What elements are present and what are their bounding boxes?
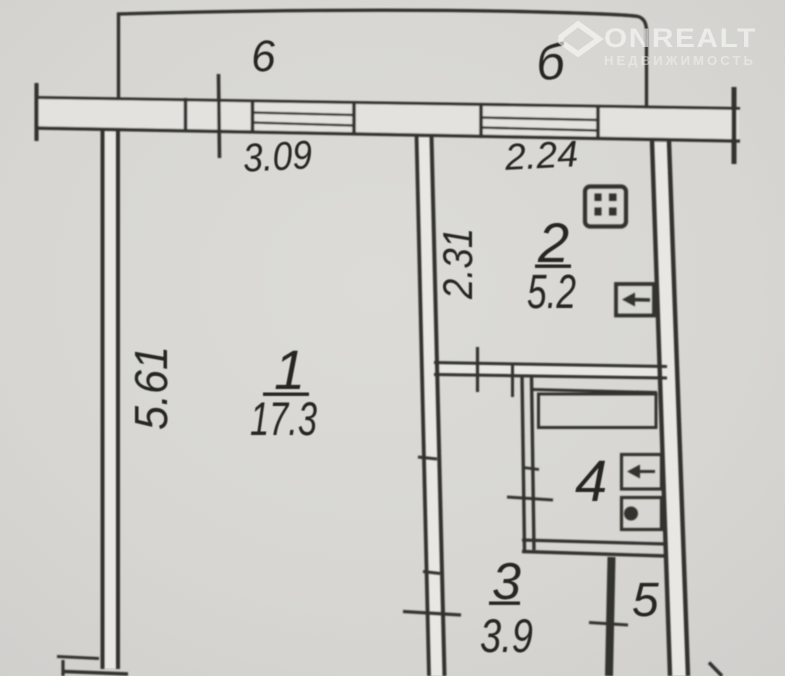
svg-text:2.31: 2.31 bbox=[434, 228, 481, 300]
svg-text:2.24: 2.24 bbox=[503, 133, 579, 178]
svg-text:17.3: 17.3 bbox=[250, 392, 317, 445]
svg-text:5: 5 bbox=[632, 574, 659, 627]
svg-text:НЕДВИЖИМОСТЬ: НЕДВИЖИМОСТЬ bbox=[604, 53, 756, 68]
svg-text:3.9: 3.9 bbox=[480, 609, 533, 662]
svg-text:5.2: 5.2 bbox=[527, 266, 576, 319]
svg-text:6: 6 bbox=[250, 31, 278, 81]
svg-text:3.09: 3.09 bbox=[242, 133, 313, 181]
svg-text:5.61: 5.61 bbox=[125, 346, 177, 430]
svg-text:4: 4 bbox=[575, 449, 607, 514]
svg-text:ONREALT: ONREALT bbox=[604, 23, 757, 53]
